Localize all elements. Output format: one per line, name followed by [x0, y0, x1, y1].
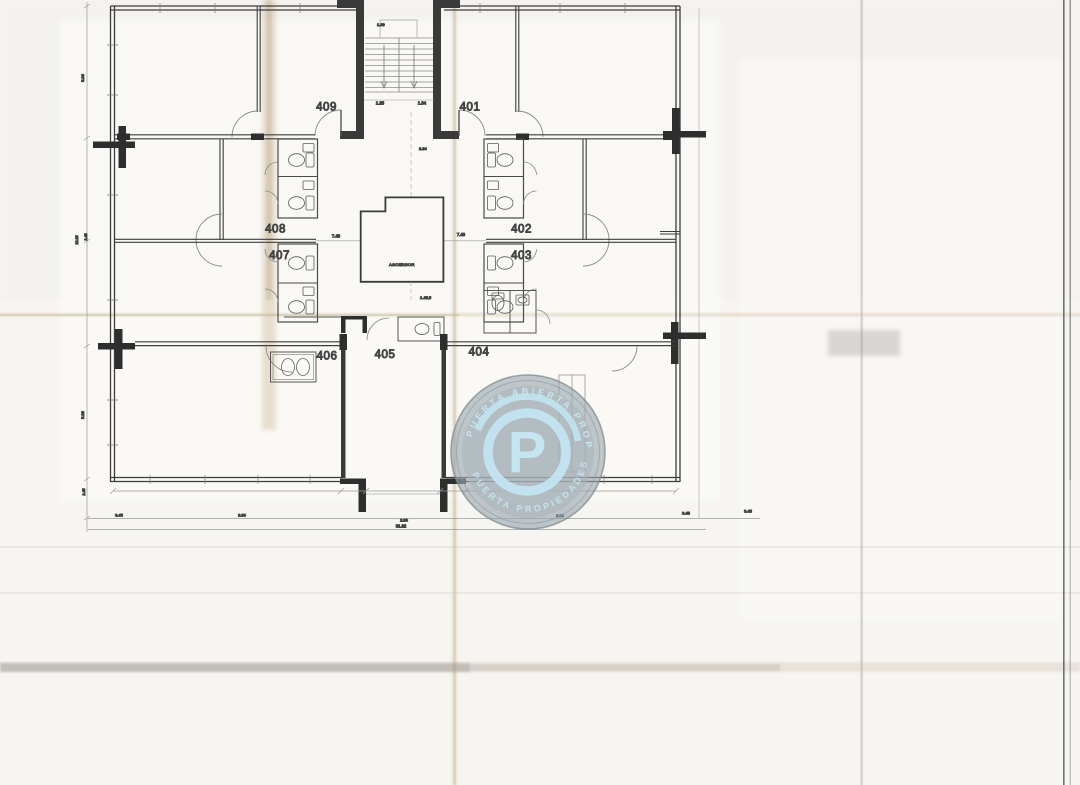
svg-text:7.49: 7.49	[457, 232, 466, 237]
svg-text:406: 406	[317, 351, 338, 363]
svg-text:401: 401	[460, 102, 481, 114]
svg-text:408: 408	[265, 224, 286, 236]
svg-text:P: P	[508, 420, 547, 485]
svg-text:404: 404	[469, 347, 490, 359]
svg-text:403: 403	[511, 250, 532, 262]
svg-text:3.45: 3.45	[115, 513, 124, 518]
svg-text:405: 405	[375, 349, 396, 361]
svg-text:ASCENSOR: ASCENSOR	[389, 262, 415, 267]
svg-text:2.34: 2.34	[419, 146, 428, 151]
svg-text:1.39: 1.39	[377, 22, 386, 27]
svg-text:8.80: 8.80	[238, 513, 247, 518]
svg-text:402: 402	[511, 224, 532, 236]
svg-text:2.46: 2.46	[84, 234, 88, 241]
svg-text:3.45: 3.45	[682, 511, 691, 516]
svg-text:1.45.5: 1.45.5	[420, 295, 432, 300]
svg-text:31.92: 31.92	[396, 524, 407, 529]
svg-text:5.06: 5.06	[80, 73, 85, 82]
svg-text:2.45: 2.45	[82, 489, 86, 496]
svg-text:5.38: 5.38	[80, 410, 85, 419]
svg-text:7.49: 7.49	[332, 234, 341, 239]
svg-text:3.45: 3.45	[744, 509, 753, 514]
svg-text:18.15: 18.15	[75, 236, 79, 245]
svg-text:407: 407	[269, 250, 290, 262]
svg-text:2.90: 2.90	[400, 518, 409, 523]
svg-text:1.25: 1.25	[376, 101, 385, 106]
svg-text:409: 409	[316, 102, 337, 114]
svg-text:1.34: 1.34	[418, 101, 427, 106]
